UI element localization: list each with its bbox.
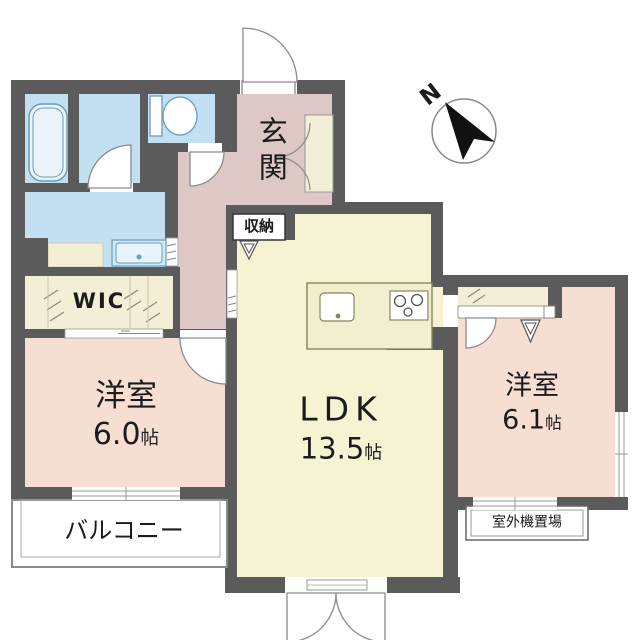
closet-front (458, 306, 550, 318)
stove-icon (390, 291, 428, 320)
kitchen-counter (307, 283, 432, 349)
bedroom-right-name: 洋室 (502, 373, 562, 401)
french-door-left-arc (287, 593, 336, 640)
french-door-right-arc (336, 593, 385, 640)
toilet-icon (150, 96, 197, 136)
outdoor-unit-label: 室外機置場 (492, 516, 562, 531)
floor-plan: 玄関 収納 WIC 洋室 6.0帖 LDK 13.5帖 洋室 6.1帖 バルコニ… (0, 0, 640, 640)
bedroom-right-floor-corner (562, 287, 615, 318)
bedroom-right-size: 6.1帖 (502, 407, 562, 435)
ldk-size: 13.5帖 (299, 433, 382, 463)
wic-label: WIC (73, 290, 125, 312)
ldk-name: LDK (299, 392, 382, 427)
bedroom-right-label: 洋室 6.1帖 (502, 373, 562, 436)
bathtub-icon (29, 104, 67, 181)
ldk-label: LDK 13.5帖 (299, 392, 382, 463)
entry-door-arc (243, 28, 297, 82)
bath-partition-wall (68, 94, 79, 183)
storage-label: 収納 (244, 219, 274, 235)
compass-icon (432, 99, 496, 163)
bedroom-left-name: 洋室 (93, 380, 159, 413)
bedroom-left-label: 洋室 6.0帖 (93, 380, 159, 450)
ldk-floor-upper (283, 214, 431, 240)
washer-space (48, 243, 103, 267)
entrance-label: 玄関 (256, 116, 286, 188)
balcony-label: バルコニー (64, 518, 184, 543)
sink-icon (112, 240, 166, 266)
bedroom-left-size: 6.0帖 (93, 419, 159, 451)
